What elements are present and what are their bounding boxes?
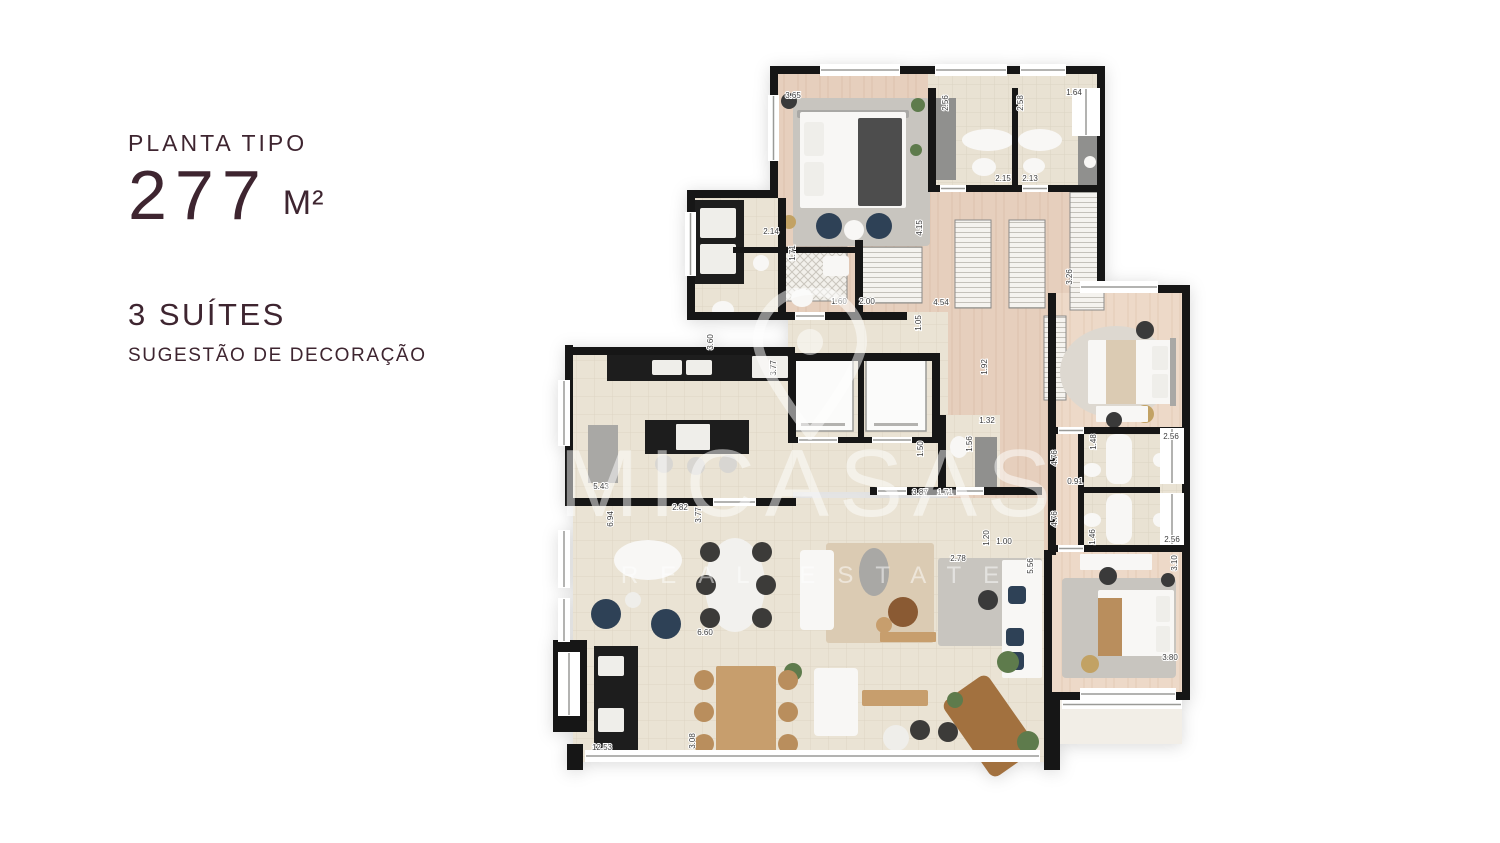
dimension-label: 6.94 (606, 511, 615, 527)
window-glass (1059, 548, 1083, 550)
furniture (1083, 513, 1101, 527)
wall (928, 88, 936, 192)
wall (687, 190, 778, 198)
wall (565, 498, 713, 506)
dimension-label: 1.71 (937, 488, 953, 497)
dimension-label: 5.56 (1026, 558, 1035, 574)
furniture (1084, 156, 1096, 168)
furniture (975, 437, 997, 493)
dimension-label: 5.43 (593, 482, 609, 491)
floor-plan: 3.652.562.581.642.152.132.141.711.602.00… (0, 0, 1500, 843)
furniture (778, 670, 798, 690)
furniture (686, 360, 712, 375)
furniture (1080, 554, 1152, 570)
elevator-door (801, 423, 845, 426)
furniture (1023, 158, 1045, 174)
dimension-label: 3.80 (1162, 653, 1178, 662)
furniture (651, 609, 681, 639)
dimension-label: 2.78 (950, 554, 966, 563)
furniture (1099, 567, 1117, 585)
furniture (1017, 731, 1039, 753)
wall (565, 347, 795, 355)
elevator (793, 359, 853, 431)
furniture (859, 548, 889, 596)
furniture (1106, 494, 1132, 544)
furniture (1083, 463, 1101, 477)
furniture (938, 722, 958, 742)
furniture (1098, 598, 1122, 656)
furniture (1008, 586, 1026, 604)
furniture (752, 608, 772, 628)
furniture (876, 617, 892, 633)
furniture (700, 608, 720, 628)
window-glass (563, 381, 565, 445)
furniture (844, 220, 864, 240)
dimension-label: 1.71 (788, 245, 797, 261)
furniture (823, 256, 849, 276)
window-glass (799, 439, 837, 441)
furniture (696, 575, 716, 595)
window-glass (873, 439, 911, 441)
furniture (888, 597, 918, 627)
wall (1080, 487, 1160, 493)
window-glass (568, 653, 570, 715)
furniture (1152, 346, 1168, 370)
furniture (598, 656, 624, 676)
dimension-label: 3.26 (1065, 269, 1074, 285)
window-glass (941, 188, 965, 190)
furniture (910, 720, 930, 740)
furniture (866, 213, 892, 239)
wall (756, 498, 796, 506)
dimension-label: 2.00 (859, 297, 875, 306)
window-glass (1081, 286, 1157, 288)
dimension-label: 3.77 (769, 360, 778, 376)
furniture (700, 542, 720, 562)
furniture (1106, 434, 1132, 484)
furniture (694, 702, 714, 722)
furniture (716, 666, 776, 758)
dimension-label: 2.13 (1022, 174, 1038, 183)
wall (858, 353, 864, 438)
window-glass (957, 490, 983, 492)
furniture (655, 455, 673, 473)
wardrobe (1009, 220, 1045, 308)
wall (788, 353, 796, 441)
dimension-label: 1.56 (965, 436, 974, 452)
dimension-label: 1.32 (979, 416, 995, 425)
window-glass (878, 490, 906, 492)
furniture (880, 632, 936, 642)
furniture (791, 289, 813, 307)
furniture (804, 122, 824, 156)
furniture (1106, 340, 1136, 404)
furniture (910, 144, 922, 156)
furniture (972, 158, 996, 176)
furniture (862, 690, 928, 706)
window-glass (1059, 430, 1083, 432)
furniture (700, 208, 736, 238)
dimension-label: 2.56 (1164, 535, 1180, 544)
furniture (719, 455, 737, 473)
furniture (1161, 573, 1175, 587)
window-glass (714, 501, 755, 503)
dimension-label: 1.50 (916, 441, 925, 457)
dimension-label: 2.58 (1016, 95, 1025, 111)
furniture (1170, 338, 1176, 406)
wall (567, 744, 583, 770)
wall (1044, 696, 1060, 770)
elevator-door (874, 423, 918, 426)
dimension-label: 1.92 (980, 359, 989, 375)
furniture (816, 213, 842, 239)
dimension-label: 1.60 (831, 297, 847, 306)
window-glass (1021, 69, 1065, 71)
dimension-label: 4.76 (1050, 511, 1059, 527)
dimension-label: 3.87 (912, 488, 928, 497)
dimension-label: 1.46 (1088, 529, 1097, 545)
furniture (676, 424, 710, 450)
furniture (858, 118, 902, 206)
dimension-label: 2.56 (1163, 432, 1179, 441)
furniture (1081, 655, 1099, 673)
furniture (962, 129, 1014, 151)
dimension-label: 1.48 (1089, 434, 1098, 450)
window-glass (563, 599, 565, 641)
dimension-label: 4.76 (1050, 450, 1059, 466)
furniture (625, 592, 641, 608)
furniture (700, 244, 736, 274)
wall (1044, 550, 1052, 700)
dimension-label: 1.00 (996, 537, 1012, 546)
furniture (753, 255, 769, 271)
window-glass (690, 213, 692, 275)
dimension-label: 2.56 (941, 95, 950, 111)
furniture (947, 692, 963, 708)
window-glass (1023, 188, 1047, 190)
dimension-label: 3.60 (706, 334, 715, 350)
dimension-label: 4.15 (915, 220, 924, 236)
window-glass (936, 69, 1006, 71)
furniture (1006, 628, 1024, 646)
furniture (883, 725, 909, 751)
furniture (1106, 412, 1122, 428)
dimension-label: 6.60 (697, 628, 713, 637)
window-glass (1085, 89, 1087, 135)
dimension-label: 1.64 (1066, 88, 1082, 97)
window-glass (1063, 704, 1181, 706)
dimension-label: 0.91 (1067, 477, 1083, 486)
window-glass (586, 755, 1039, 757)
window-glass (1081, 693, 1175, 695)
furniture (588, 425, 618, 483)
furniture (800, 550, 834, 630)
furniture (997, 651, 1019, 673)
furniture (1156, 596, 1170, 622)
page: PLANTA TIPO 277 M² 3 SUÍTES SUGESTÃO DE … (0, 0, 1500, 843)
furniture (1156, 626, 1170, 652)
furniture (978, 590, 998, 610)
wardrobe (955, 220, 991, 308)
dimension-label: 2.82 (672, 503, 688, 512)
dimension-label: 12.53 (592, 743, 613, 752)
dimension-label: 3.65 (785, 91, 801, 100)
dimension-label: 2.14 (763, 227, 779, 236)
furniture (911, 98, 925, 112)
furniture (614, 540, 682, 580)
furniture (1152, 374, 1168, 398)
wall (1182, 285, 1190, 700)
window-glass (563, 531, 565, 587)
window-glass (821, 69, 899, 71)
window-glass (796, 315, 824, 317)
furniture (1018, 129, 1062, 151)
wall (938, 415, 946, 493)
dimension-label: 3.10 (1170, 555, 1179, 571)
furniture (1096, 406, 1148, 422)
wardrobe (860, 247, 922, 303)
furniture (814, 668, 858, 736)
furniture (756, 575, 776, 595)
furniture (694, 670, 714, 690)
furniture (591, 599, 621, 629)
wall (778, 198, 786, 316)
furniture (687, 457, 705, 475)
furniture (778, 702, 798, 722)
dimension-label: 4.54 (933, 298, 949, 307)
furniture (1136, 321, 1154, 339)
furniture (804, 162, 824, 196)
dimension-label: 1.20 (982, 530, 991, 546)
dimension-label: 2.15 (995, 174, 1011, 183)
furniture (652, 360, 682, 375)
furniture (752, 542, 772, 562)
dimension-label: 3.08 (688, 733, 697, 749)
elevator (866, 359, 926, 431)
dimension-label: 3.77 (694, 507, 703, 523)
furniture (598, 708, 624, 732)
dimension-label: 1.05 (914, 315, 923, 331)
window-glass (773, 96, 775, 160)
